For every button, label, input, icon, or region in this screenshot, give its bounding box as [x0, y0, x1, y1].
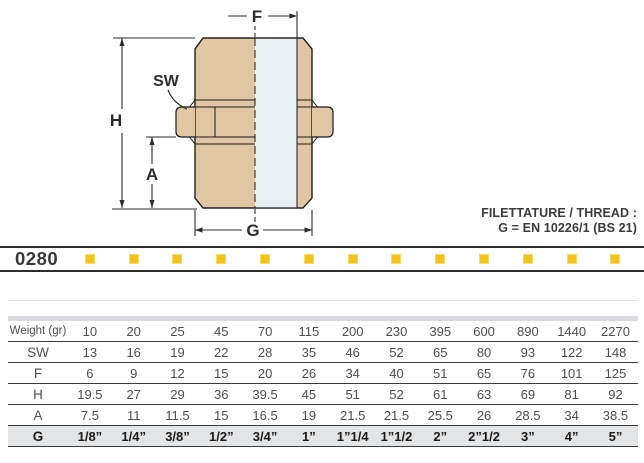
table-cell: 63 [462, 387, 506, 402]
table-cell: 15 [199, 408, 243, 423]
table-cell: 35 [287, 345, 331, 360]
table-cell: 40 [375, 366, 419, 381]
table-cell: 122 [550, 345, 594, 360]
table-cell: 26 [287, 366, 331, 381]
table-cell: 20 [243, 366, 287, 381]
table-cell: 1/2” [199, 429, 243, 444]
table-cell: 15 [199, 366, 243, 381]
table-cell: 39.5 [243, 387, 287, 402]
table-cell: 1440 [550, 324, 594, 339]
table-cell: 65 [462, 366, 506, 381]
table-cell: 80 [462, 345, 506, 360]
table-cell: 11.5 [156, 408, 200, 423]
table-cell: 36 [199, 387, 243, 402]
section-divider [8, 300, 638, 301]
table-cell: 16 [112, 345, 156, 360]
availability-square [506, 254, 550, 264]
table-cell: 52 [375, 387, 419, 402]
table-cell: 200 [331, 324, 375, 339]
table-cell: 19 [156, 345, 200, 360]
table-cell: 19 [287, 408, 331, 423]
table-cell: 21.5 [375, 408, 419, 423]
table-cell: 1” [287, 429, 331, 444]
table-row-sw: SW 13 16 19 22 28 35 46 52 65 80 93 122 … [8, 342, 638, 363]
availability-square [199, 254, 243, 264]
table-cell: 34 [550, 408, 594, 423]
availability-square [68, 254, 112, 264]
row-label: F [8, 366, 68, 381]
table-cell: 600 [462, 324, 506, 339]
thread-note-line2: G = EN 10226/1 (BS 21) [481, 221, 637, 236]
table-cell: 65 [418, 345, 462, 360]
product-code-band: 0280 [0, 246, 644, 272]
table-cell: 92 [594, 387, 638, 402]
table-cell: 45 [199, 324, 243, 339]
table-cell: 1”1/4 [331, 429, 375, 444]
availability-square [243, 254, 287, 264]
table-cell: 70 [243, 324, 287, 339]
table-row-a: A 7.5 11 11.5 15 16.5 19 21.5 21.5 25.5 … [8, 405, 638, 426]
thread-note: FILETTATURE / THREAD : G = EN 10226/1 (B… [481, 206, 637, 236]
table-row-weight: Weight (gr) 10 20 25 45 70 115 200 230 3… [8, 321, 638, 342]
table-cell: 29 [156, 387, 200, 402]
catalog-page: F H A G SW FILETTATURE / THREAD : G = EN… [0, 0, 644, 463]
table-cell: 148 [594, 345, 638, 360]
table-cell: 45 [287, 387, 331, 402]
table-cell: 2270 [594, 324, 638, 339]
availability-square [462, 254, 506, 264]
table-cell: 25.5 [418, 408, 462, 423]
hex-wing-left [176, 107, 195, 137]
table-cell: 28 [243, 345, 287, 360]
table-cell: 9 [112, 366, 156, 381]
table-cell: 125 [594, 366, 638, 381]
table-row-h: H 19.5 27 29 36 39.5 45 51 52 61 63 69 8… [8, 384, 638, 405]
row-label: Weight (gr) [8, 325, 68, 337]
product-code: 0280 [8, 248, 68, 270]
dim-label-f: F [252, 7, 262, 26]
availability-square [156, 254, 200, 264]
table-cell: 1/4” [112, 429, 156, 444]
availability-square [375, 254, 419, 264]
table-cell: 69 [506, 387, 550, 402]
table-cell: 890 [506, 324, 550, 339]
availability-square [112, 254, 156, 264]
table-cell: 19.5 [68, 387, 112, 402]
availability-square [594, 254, 638, 264]
table-cell: 1/8” [68, 429, 112, 444]
dim-label-h: H [110, 111, 122, 130]
table-cell: 34 [331, 366, 375, 381]
table-cell: 93 [506, 345, 550, 360]
table-cell: 51 [331, 387, 375, 402]
table-cell: 21.5 [331, 408, 375, 423]
table-cell: 12 [156, 366, 200, 381]
dim-label-sw: SW [153, 73, 180, 90]
thread-note-line1: FILETTATURE / THREAD : [481, 206, 637, 221]
availability-square [331, 254, 375, 264]
table-cell: 28.5 [506, 408, 550, 423]
availability-square [418, 254, 462, 264]
table-cell: 25 [156, 324, 200, 339]
table-cell: 2” [418, 429, 462, 444]
table-cell: 51 [418, 366, 462, 381]
table-cell: 7.5 [68, 408, 112, 423]
table-cell: 16.5 [243, 408, 287, 423]
table-cell: 5” [594, 429, 638, 444]
table-cell: 81 [550, 387, 594, 402]
availability-square [287, 254, 331, 264]
table-cell: 20 [112, 324, 156, 339]
table-cell: 10 [68, 324, 112, 339]
row-label: G [8, 429, 68, 444]
bore-band [255, 39, 297, 208]
table-cell: 46 [331, 345, 375, 360]
table-cell: 395 [418, 324, 462, 339]
table-cell: 38.5 [594, 408, 638, 423]
dim-label-g: G [246, 221, 259, 240]
table-row-g: G 1/8” 1/4” 3/8” 1/2” 3/4” 1” 1”1/4 1”1/… [8, 426, 638, 447]
dimensions-table: Weight (gr) 10 20 25 45 70 115 200 230 3… [8, 321, 638, 447]
table-cell: 76 [506, 366, 550, 381]
table-cell: 61 [418, 387, 462, 402]
table-cell: 27 [112, 387, 156, 402]
table-cell: 4” [550, 429, 594, 444]
table-cell: 11 [112, 408, 156, 423]
table-cell: 230 [375, 324, 419, 339]
table-cell: 26 [462, 408, 506, 423]
table-cell: 101 [550, 366, 594, 381]
table-cell: 6 [68, 366, 112, 381]
dim-label-a: A [146, 165, 158, 184]
row-label: H [8, 387, 68, 402]
row-label: A [8, 408, 68, 423]
hex-wing-right [312, 107, 333, 137]
table-row-f: F 6 9 12 15 20 26 34 40 51 65 76 101 125 [8, 363, 638, 384]
table-cell: 3/8” [156, 429, 200, 444]
table-cell: 22 [199, 345, 243, 360]
table-cell: 3/4” [243, 429, 287, 444]
table-cell: 1”1/2 [375, 429, 419, 444]
table-cell: 3” [506, 429, 550, 444]
table-cell: 2”1/2 [462, 429, 506, 444]
table-cell: 13 [68, 345, 112, 360]
row-label: SW [8, 345, 68, 360]
table-cell: 52 [375, 345, 419, 360]
availability-square [550, 254, 594, 264]
table-cell: 115 [287, 324, 331, 339]
